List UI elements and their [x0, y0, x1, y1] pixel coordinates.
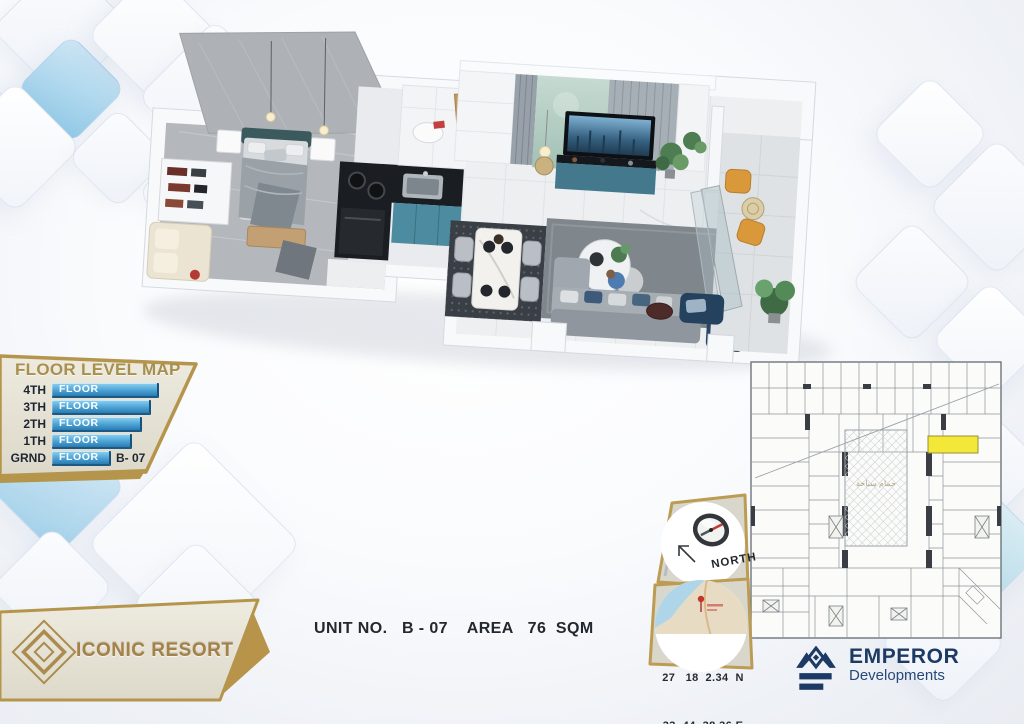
wall-tile-panel — [454, 71, 515, 164]
dining-chair — [454, 237, 473, 262]
floor-bar: FLOOR — [52, 451, 111, 466]
bed — [236, 127, 312, 233]
dining-chair — [452, 273, 471, 298]
floor-level-map-panel: FLOOR LEVEL MAP 4TH FLOOR 3TH FLOOR 2TH … — [0, 348, 220, 488]
floor-level-rows: 4TH FLOOR 3TH FLOOR 2TH FLOOR 1TH FLOOR … — [0, 382, 200, 467]
gps-coordinates: 27 18 2.34 N 33 44 38.36 E — [648, 638, 758, 724]
developer-name: EMPEROR — [849, 646, 959, 668]
floor-level-label: 1TH — [0, 434, 52, 448]
highlighted-unit-b07 — [928, 436, 978, 453]
lamp-icon — [539, 146, 551, 158]
developer-tagline: Developments — [849, 668, 959, 684]
area-label: AREA — [467, 620, 513, 637]
side-table — [535, 156, 554, 175]
floor-bar: FLOOR — [52, 434, 132, 449]
project-name: ICONIC RESORT — [76, 640, 233, 662]
floor-level-map-title: FLOOR LEVEL MAP — [15, 360, 181, 380]
dining-chair — [520, 277, 539, 302]
unit-info: UNIT NO. B - 07 AREA 76 SQM — [314, 620, 594, 638]
floor-level-label: 4TH — [0, 383, 52, 397]
floor-bar: FLOOR — [52, 383, 159, 398]
unit-no-value: B - 07 — [402, 620, 448, 637]
floor-bar-text: FLOOR — [52, 434, 130, 447]
nightstand — [216, 130, 241, 153]
area-value: 76 SQM — [528, 620, 594, 637]
unit-no-label: UNIT NO. — [314, 620, 387, 637]
red-towel — [433, 121, 445, 129]
iconic-resort-panel: ICONIC RESORT — [0, 588, 300, 724]
floor-bar-text: FLOOR — [52, 417, 140, 430]
floor-row-3th: 3TH FLOOR — [0, 399, 200, 415]
floor-row-1th: 1TH FLOOR — [0, 433, 200, 449]
oven — [338, 208, 385, 257]
floor-row-grnd: GRND FLOOR B- 07 — [0, 450, 200, 466]
emperor-crown-icon — [792, 646, 840, 694]
floor-bar-text: FLOOR — [52, 451, 109, 464]
floor-bar-text: FLOOR — [52, 400, 149, 413]
gps-longitude: 33 44 38.36 E — [648, 718, 758, 724]
floor-level-label: 2TH — [0, 417, 52, 431]
dining-chair — [522, 241, 541, 266]
pool-label: حمام سباحة — [856, 479, 896, 488]
floor-note: B- 07 — [116, 451, 145, 465]
nightstand — [310, 138, 335, 161]
floor-row-2th: 2TH FLOOR — [0, 416, 200, 432]
gps-latitude: 27 18 2.34 N — [648, 670, 758, 686]
cooktop-burner — [368, 182, 385, 199]
bookshelf — [158, 159, 232, 225]
balcony-chair — [725, 169, 751, 193]
floor-level-label: 3TH — [0, 400, 52, 414]
map-pin-icon — [698, 596, 704, 602]
swimming-pool: حمام سباحة — [845, 430, 907, 546]
cooktop-burner — [348, 172, 365, 189]
floor-bar: FLOOR — [52, 417, 142, 432]
floor-bar: FLOOR — [52, 400, 151, 415]
bedroom-sofa — [147, 222, 212, 282]
floor-bar-text: FLOOR — [52, 383, 157, 396]
brochure-page: FLOOR LEVEL MAP 4TH FLOOR 3TH FLOOR 2TH … — [0, 0, 1024, 724]
floor-level-label: GRND — [0, 451, 52, 465]
floor-row-4th: 4TH FLOOR — [0, 382, 200, 398]
dining-set — [445, 220, 547, 322]
developer-logo: EMPEROR Developments — [792, 646, 959, 694]
